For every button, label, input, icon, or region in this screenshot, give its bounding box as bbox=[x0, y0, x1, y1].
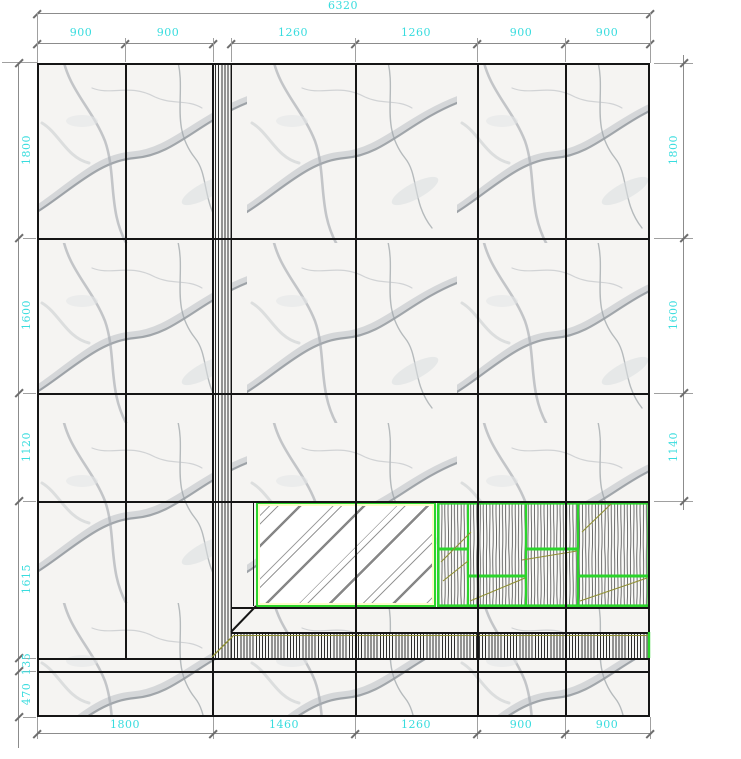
ext-line bbox=[654, 238, 693, 239]
dim-line-left bbox=[18, 62, 19, 748]
dim-line-bottom bbox=[37, 733, 650, 734]
ext-line bbox=[23, 393, 36, 394]
dim-line-right bbox=[683, 55, 684, 510]
ext-line bbox=[37, 717, 38, 739]
dim-label: 900 bbox=[499, 719, 543, 731]
dim-label: 1600 bbox=[668, 293, 680, 337]
dim-label: 900 bbox=[146, 27, 190, 39]
dim-line-top-total bbox=[37, 13, 650, 14]
ext-line bbox=[23, 717, 36, 718]
ext-line bbox=[654, 63, 693, 64]
dim-label: 1120 bbox=[21, 425, 33, 469]
ext-line bbox=[650, 717, 651, 739]
dim-label: 1800 bbox=[103, 719, 147, 731]
ext-line bbox=[654, 393, 693, 394]
dim-label: 900 bbox=[59, 27, 103, 39]
ext-line bbox=[477, 717, 478, 739]
corner-detail-lines bbox=[0, 0, 741, 759]
dim-label: 1260 bbox=[394, 719, 438, 731]
dim-label: 1260 bbox=[394, 27, 438, 39]
dim-label: 1260 bbox=[271, 27, 315, 39]
dim-label: 1615 bbox=[21, 557, 33, 601]
dim-line-top-segments bbox=[231, 43, 650, 44]
ext-line bbox=[125, 38, 126, 62]
dim-label: 1140 bbox=[668, 425, 680, 469]
dim-label-top-total: 6320 bbox=[321, 0, 365, 12]
dim-label: 1800 bbox=[21, 128, 33, 172]
ext-line bbox=[565, 38, 566, 62]
dim-label: 900 bbox=[499, 27, 543, 39]
ext-line bbox=[231, 38, 232, 62]
dim-label: 1460 bbox=[262, 719, 306, 731]
dim-label: 900 bbox=[585, 719, 629, 731]
ext-line bbox=[23, 501, 36, 502]
ext-line bbox=[355, 38, 356, 62]
stone-elevation-drawing: 6320 900 900 1260 1260 900 900 1800 1600… bbox=[0, 0, 741, 759]
ext-line bbox=[650, 13, 651, 63]
ext-line bbox=[213, 38, 214, 62]
ext-line bbox=[654, 501, 693, 502]
ext-line bbox=[355, 717, 356, 739]
ext-line bbox=[23, 238, 36, 239]
ext-line bbox=[213, 717, 214, 739]
ext-line bbox=[37, 13, 38, 63]
ext-line bbox=[565, 717, 566, 739]
dim-label: 1800 bbox=[668, 128, 680, 172]
dim-label: 1600 bbox=[21, 293, 33, 337]
dim-label: 470 bbox=[21, 672, 33, 716]
ext-line bbox=[477, 38, 478, 62]
dim-label: 900 bbox=[585, 27, 629, 39]
